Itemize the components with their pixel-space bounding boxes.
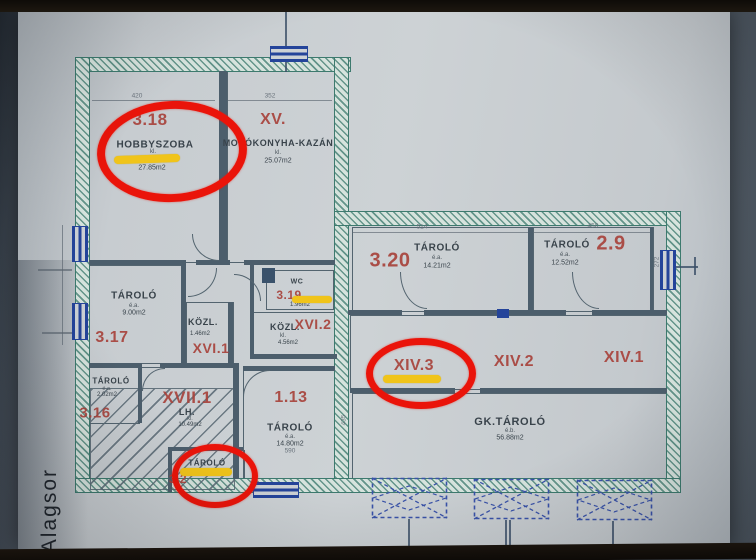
garage-door-symbol xyxy=(371,477,448,519)
room-number: XIV.2 xyxy=(494,353,534,371)
interior-wall xyxy=(138,363,142,423)
interior-wall xyxy=(243,366,335,371)
interior-wall xyxy=(89,363,139,368)
room-area: 9.00m2 xyxy=(122,310,145,317)
flue-shaft xyxy=(262,268,275,283)
interior-wall xyxy=(244,260,335,265)
room-name: TÁROLÓ xyxy=(267,423,313,434)
room-area: 10.49m2 xyxy=(178,422,201,428)
room-area: 12.52m2 xyxy=(551,260,578,267)
wall xyxy=(335,212,680,225)
axis-line xyxy=(505,520,507,546)
room-area: 2.02m2 xyxy=(97,392,117,398)
axis-line xyxy=(612,521,614,546)
interior-wall xyxy=(650,227,653,312)
wall xyxy=(76,58,350,71)
interior-wall xyxy=(424,310,566,315)
room-area: 25.07m2 xyxy=(264,158,291,165)
dimension-text: 450 xyxy=(588,223,599,230)
room-number: XVI.2 xyxy=(295,316,332,332)
room-sub: kl. xyxy=(275,150,281,156)
dimension-line xyxy=(42,332,72,334)
annotation-ellipse-tarolo-bottom xyxy=(172,444,258,508)
garage-door-symbol xyxy=(473,478,550,520)
dimension-line xyxy=(533,232,650,233)
room-number: 2.9 xyxy=(596,233,625,256)
pillar-marker xyxy=(497,309,509,318)
room-name: TÁROLÓ xyxy=(92,377,129,386)
floorplan-photo: Alagsor xyxy=(0,0,756,560)
room-sub: kl. xyxy=(280,333,286,339)
room-area: 14.80m2 xyxy=(276,441,303,448)
interior-wall xyxy=(160,363,236,368)
room-sub: é.a. xyxy=(432,255,442,261)
interior-wall xyxy=(250,264,254,358)
wall xyxy=(335,58,348,492)
axis-line xyxy=(408,519,410,546)
dimension-text: 514 xyxy=(417,224,428,231)
room-area: 1.46m2 xyxy=(190,331,210,337)
interior-wall xyxy=(348,310,402,315)
room-name: TÁROLÓ xyxy=(544,240,590,251)
interior-wall xyxy=(528,227,533,312)
room-area: 14.21m2 xyxy=(423,263,450,270)
axis-line xyxy=(694,257,696,275)
dimension-text: 435 xyxy=(341,415,348,426)
window-symbol xyxy=(270,46,308,62)
room-number: XVI.1 xyxy=(193,340,230,356)
room-name: KÖZL. xyxy=(188,317,218,327)
annotation-ellipse-xiv3 xyxy=(366,338,476,409)
room-sub: é.b. xyxy=(505,428,515,434)
room-number: 3.16 xyxy=(79,405,110,422)
dimension-text: 420 xyxy=(132,93,143,100)
dimension-line xyxy=(38,269,72,271)
room-area: 4.56m2 xyxy=(278,340,298,346)
room-name: GK.TÁROLÓ xyxy=(474,416,545,428)
interior-wall xyxy=(250,354,337,359)
room-number: 3.17 xyxy=(95,329,128,347)
room-name: TÁROLÓ xyxy=(111,291,157,302)
room-name: WC xyxy=(291,279,304,286)
room-area: 56.88m2 xyxy=(496,435,523,442)
room-number: XIV.1 xyxy=(604,349,644,367)
axis-line xyxy=(509,520,511,546)
dimension-text: 272 xyxy=(654,257,661,268)
interior-wall xyxy=(592,310,667,315)
interior-wall xyxy=(181,260,186,363)
room-name: TÁROLÓ xyxy=(414,243,460,254)
room-sub: é.a. xyxy=(129,303,139,309)
room-number: 1.13 xyxy=(274,389,307,407)
dimension-line xyxy=(352,232,528,233)
wall xyxy=(76,58,89,492)
dimension-text: 352 xyxy=(265,93,276,100)
axis-line xyxy=(285,12,287,72)
window-symbol xyxy=(253,482,299,498)
window-symbol xyxy=(72,303,88,340)
garage-door-symbol xyxy=(576,479,653,521)
room-sub: é.a. xyxy=(560,252,570,258)
window-symbol xyxy=(660,250,676,290)
interior-wall xyxy=(89,260,181,265)
highlight-bar-wc xyxy=(292,296,332,303)
interior-wall xyxy=(196,260,230,265)
interior-wall xyxy=(480,388,667,393)
dimension-line xyxy=(228,100,332,101)
dimension-line xyxy=(62,225,63,345)
floor-title-alagsor: Alagsor xyxy=(38,468,62,553)
room-number: XV. xyxy=(260,111,286,129)
room-sub: é.a. xyxy=(285,434,295,440)
photo-edge-top xyxy=(0,0,756,12)
room-number: XVII.1 xyxy=(162,388,211,408)
dimension-line xyxy=(92,100,215,101)
dimension-text: 590 xyxy=(285,448,296,455)
window-symbol xyxy=(72,226,88,262)
room-number: 3.20 xyxy=(370,250,411,273)
